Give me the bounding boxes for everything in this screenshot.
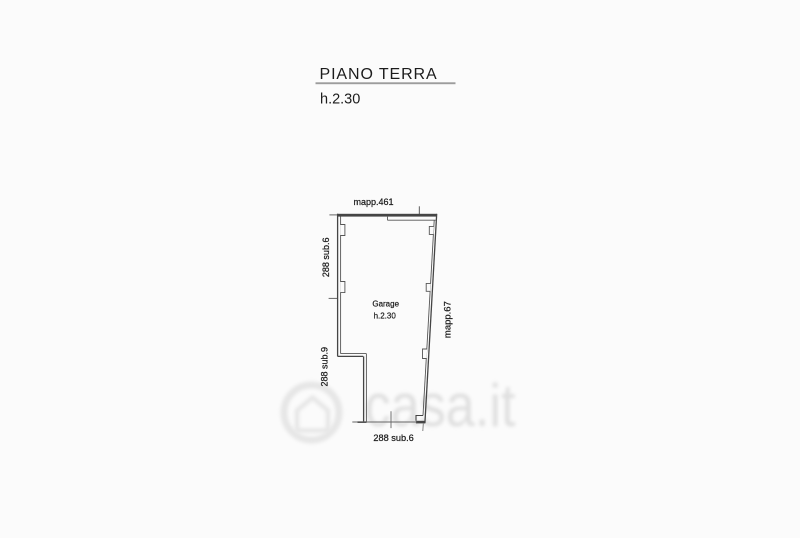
- svg-text:h.2.30: h.2.30: [374, 311, 397, 320]
- svg-text:288 sub.6: 288 sub.6: [373, 433, 413, 443]
- svg-text:h.2.30: h.2.30: [320, 92, 360, 108]
- svg-text:mapp.67: mapp.67: [443, 301, 454, 338]
- svg-text:casa.it: casa.it: [365, 372, 516, 439]
- svg-text:PIANO TERRA: PIANO TERRA: [320, 66, 438, 83]
- svg-text:Garage: Garage: [372, 300, 399, 309]
- svg-text:288 sub.6: 288 sub.6: [321, 238, 331, 278]
- svg-text:mapp.461: mapp.461: [353, 197, 393, 207]
- svg-text:288 sub.9: 288 sub.9: [320, 347, 330, 387]
